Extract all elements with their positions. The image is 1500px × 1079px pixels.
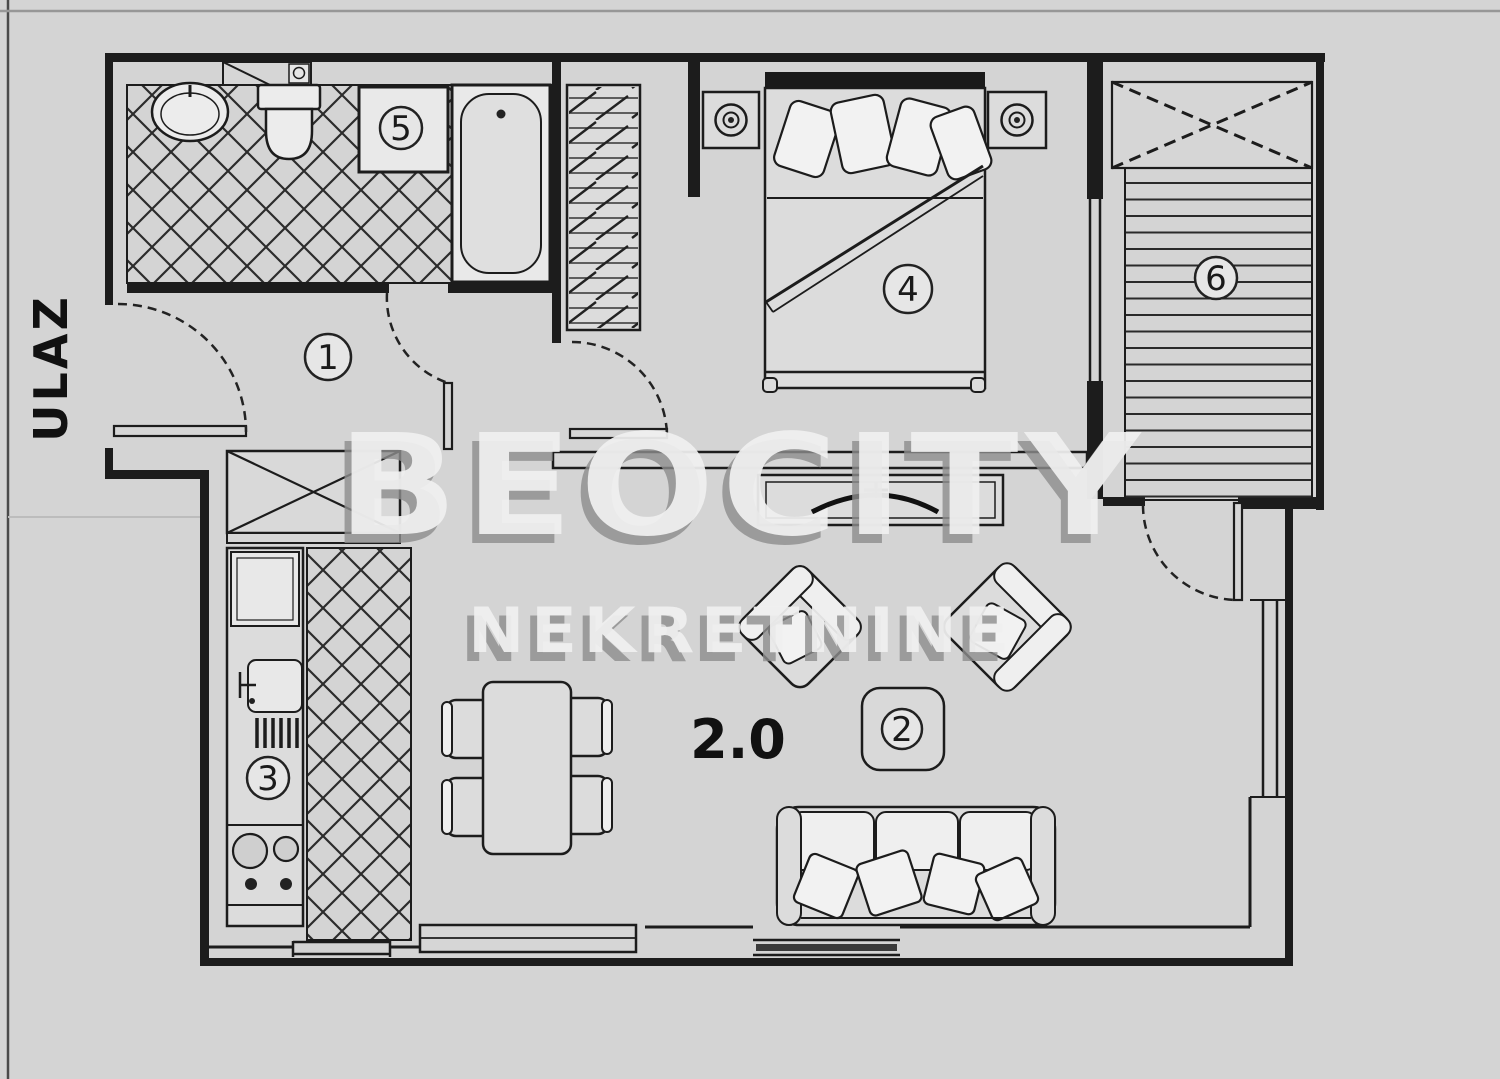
room-number-1: 1 xyxy=(317,338,339,378)
wall-bedroom-terrace-upper xyxy=(1087,62,1103,199)
window-living-south xyxy=(753,940,900,955)
room-label-living-room: 2 xyxy=(882,709,922,750)
wall-right-living xyxy=(1285,505,1293,966)
wall-terrace-right xyxy=(1316,53,1324,510)
wall-corridor-stub xyxy=(688,62,700,197)
room-number-6: 6 xyxy=(1205,259,1227,299)
dining-table xyxy=(483,682,571,854)
nightstand-right xyxy=(988,92,1046,148)
bathtub xyxy=(452,85,550,282)
floor-plan-drawing: 1 2 3 4 5 6 ULAZ 2.0 BEOCITY BEOCITY NEK… xyxy=(0,0,1500,1079)
terrace-door xyxy=(1143,503,1242,600)
kitchen-tile-floor xyxy=(307,548,411,940)
terrace-open-box xyxy=(1112,82,1312,168)
terrace-decking xyxy=(1125,168,1312,500)
area-label: 2.0 xyxy=(690,708,786,771)
vent-niche xyxy=(223,62,311,85)
wall-bathroom-south-a xyxy=(127,283,389,293)
double-bed xyxy=(763,72,994,392)
headboard xyxy=(765,72,985,88)
fridge xyxy=(231,552,299,626)
sink xyxy=(152,83,228,141)
entrance-label: ULAZ xyxy=(24,294,78,442)
room-label-bedroom: 4 xyxy=(884,265,932,313)
kitchen-sink xyxy=(240,660,302,712)
window-bedroom-terrace xyxy=(1090,199,1100,381)
wall-left-step xyxy=(105,470,205,479)
watermark-line2: NEKRETNINE xyxy=(468,594,1016,667)
wall-top xyxy=(105,53,1325,62)
window-dining xyxy=(420,925,636,952)
room-number-4: 4 xyxy=(897,270,919,310)
room-label-bathroom: 5 xyxy=(380,107,422,149)
room-number-5: 5 xyxy=(390,109,412,149)
room-label-kitchen: 3 xyxy=(247,757,289,799)
watermark-line1: BEOCITY xyxy=(337,405,1147,568)
wall-bathroom-right xyxy=(552,62,561,343)
floor-plan: 1 2 3 4 5 6 ULAZ 2.0 BEOCITY BEOCITY NEK… xyxy=(0,0,1500,1079)
bedroom-furniture xyxy=(703,72,1046,392)
bathroom xyxy=(127,62,552,283)
wardrobe-closet xyxy=(567,85,640,330)
sofa xyxy=(777,807,1055,925)
entrance-door xyxy=(114,304,246,436)
room-label-hallway: 1 xyxy=(305,334,351,380)
window-kitchen xyxy=(293,941,390,957)
wall-left-lower xyxy=(200,470,209,966)
kitchen xyxy=(227,548,411,940)
room-number-2: 2 xyxy=(891,710,913,750)
nightstand-left xyxy=(703,92,759,148)
wall-left-upper xyxy=(105,53,113,305)
wall-bathroom-south-b xyxy=(448,283,552,293)
wall-bottom-outer xyxy=(200,958,1292,966)
room-label-terrace: 6 xyxy=(1195,257,1237,299)
dining-set xyxy=(442,682,612,854)
room-number-3: 3 xyxy=(257,759,279,799)
